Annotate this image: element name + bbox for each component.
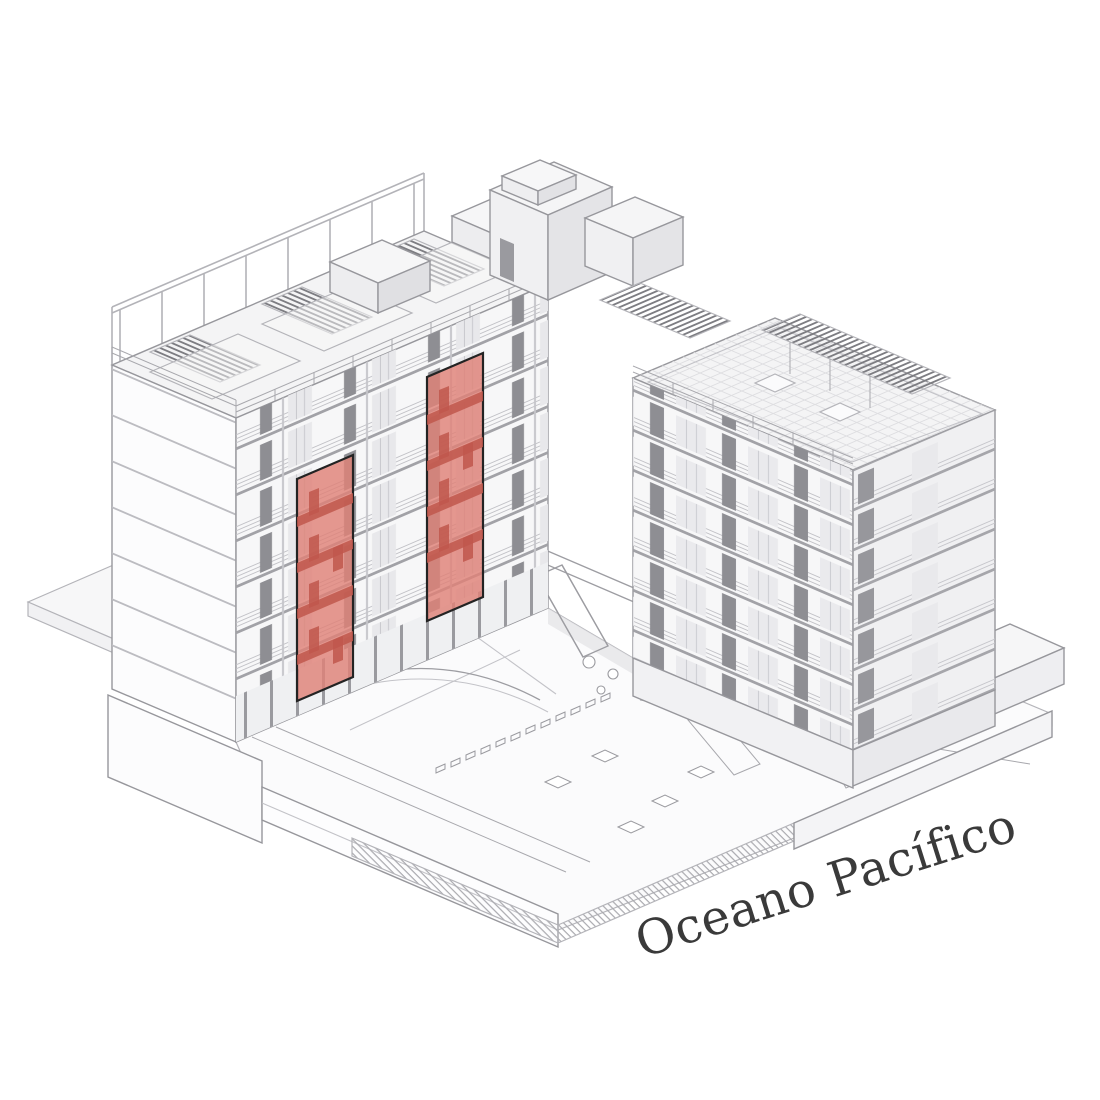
right-building <box>633 314 995 788</box>
link-pergola <box>600 283 730 338</box>
highlighted-unit-1 <box>297 455 353 701</box>
core-door <box>500 238 514 282</box>
axonometric-drawing: Oceano Pacífico <box>0 0 1100 1100</box>
drawing-canvas: Oceano Pacífico <box>0 0 1100 1100</box>
highlighted-unit-2 <box>427 353 483 621</box>
